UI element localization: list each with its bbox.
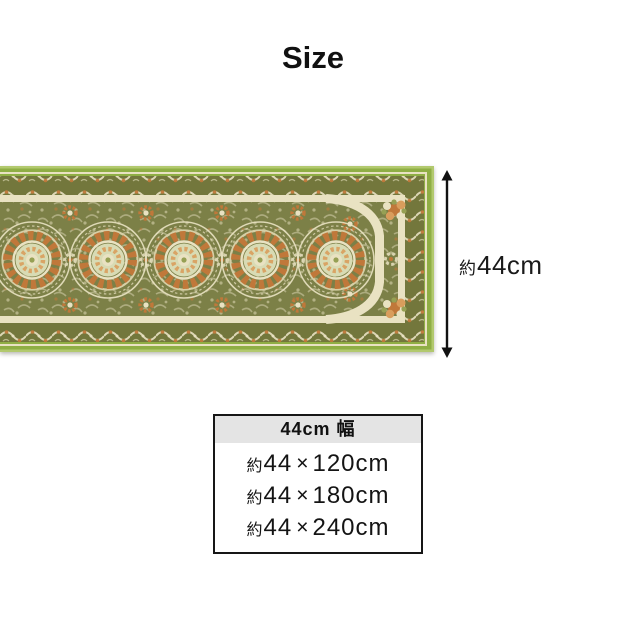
dimension-value: 44cm [477,250,543,281]
rug-graphic [0,166,434,352]
row-length: 120cm [312,450,389,478]
size-table-header: 44cm 幅 [215,416,421,443]
height-arrow-icon [440,169,454,359]
size-row-180: 約 44 × 180cm [215,480,421,512]
row-length: 180cm [312,482,389,510]
multiply-sign: × [296,484,308,508]
row-width: 44 [264,450,293,478]
dimension-approx-prefix: 約 [459,254,476,279]
page-title: Size [0,40,626,76]
approx-prefix: 約 [246,484,262,508]
row-length: 240cm [312,514,389,542]
product-size-diagram: Size [0,0,640,640]
row-width: 44 [264,482,293,510]
size-table: 44cm 幅 約 44 × 120cm 約 44 × 180cm 約 44 × … [213,414,423,554]
approx-prefix: 約 [246,516,262,540]
multiply-sign: × [296,516,308,540]
size-row-240: 約 44 × 240cm [215,512,421,544]
dimension-label: 約 44cm [459,250,543,281]
approx-prefix: 約 [246,452,262,476]
size-row-120: 約 44 × 120cm [215,448,421,480]
size-table-body: 約 44 × 120cm 約 44 × 180cm 約 44 × 240cm [215,443,421,552]
rug-image [0,166,434,352]
row-width: 44 [264,514,293,542]
multiply-sign: × [296,452,308,476]
